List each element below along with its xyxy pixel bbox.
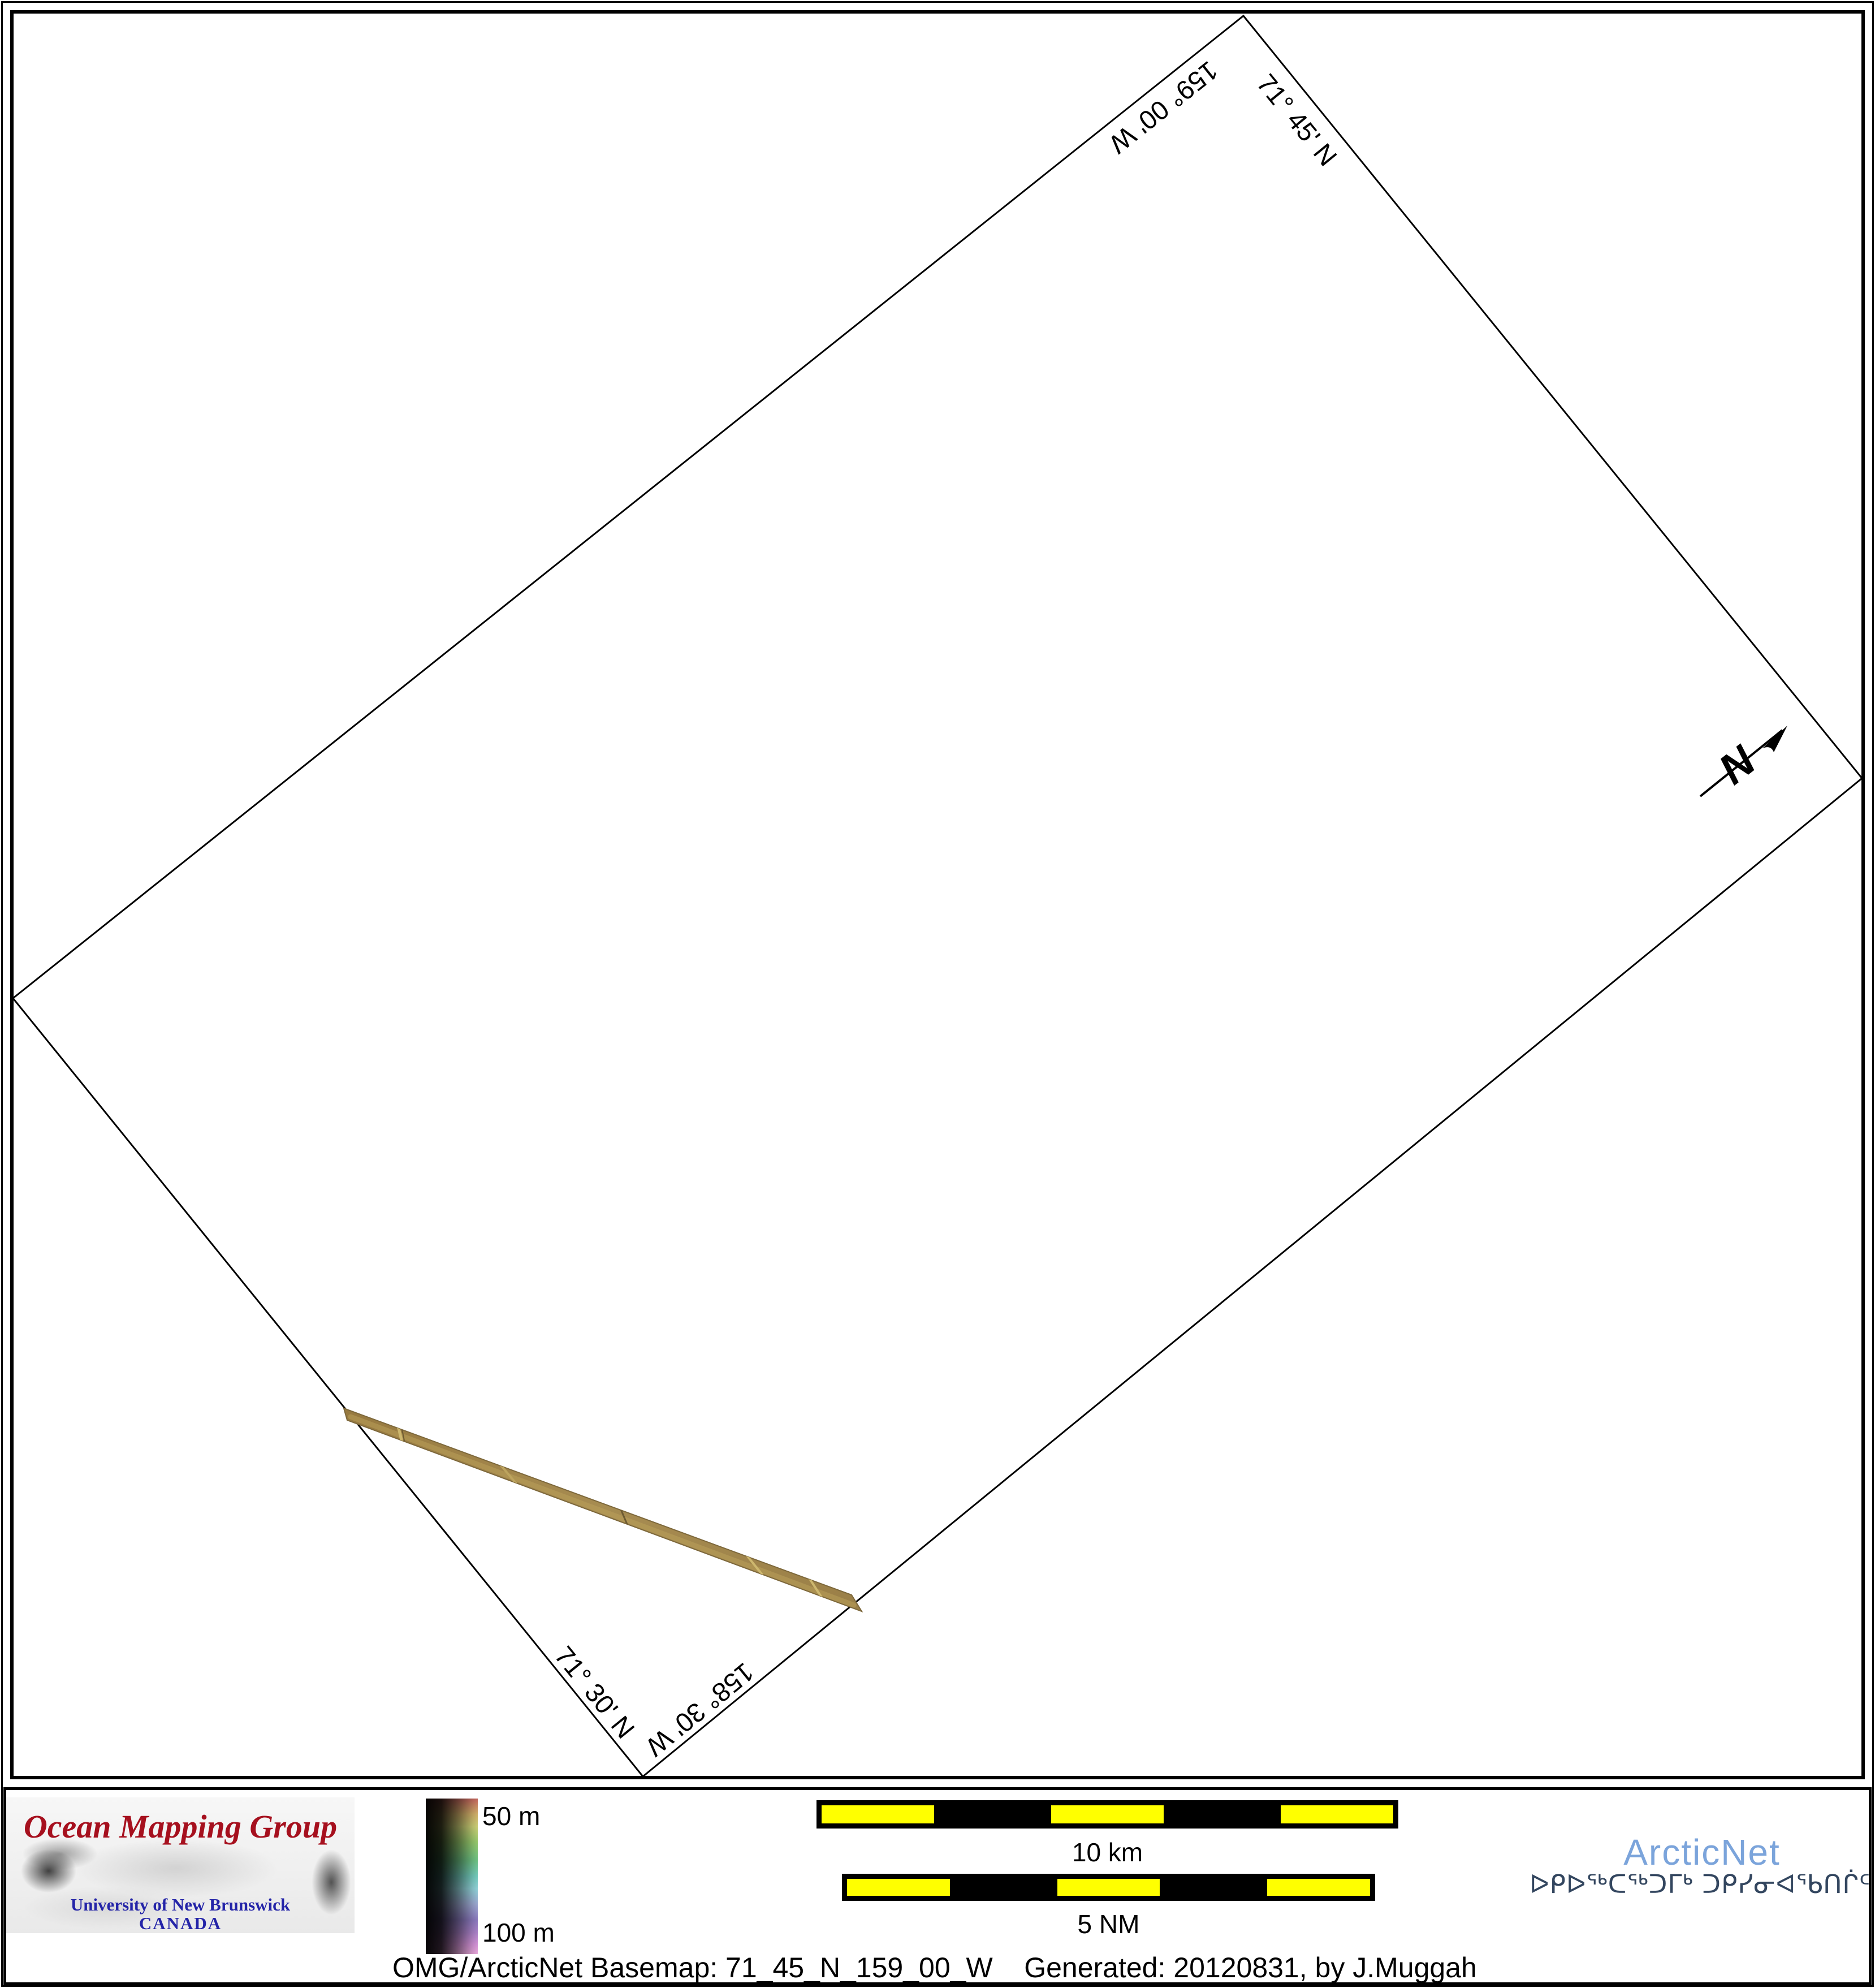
scalebar-5nm bbox=[842, 1874, 1375, 1901]
arcticnet-inuktitut-text: ᐅᑭᐅᖅᑕᖅᑐᒥᒃ ᑐᑭᓯᓂᐊᖃᑎᒌᑦ bbox=[1530, 1869, 1869, 1899]
colorbar-label-50m: 50 m bbox=[482, 1801, 540, 1831]
omg-logo-country: CANADA bbox=[6, 1913, 355, 1933]
omg-logo-university: University of New Brunswick bbox=[6, 1895, 355, 1915]
scalebar-segment bbox=[936, 1803, 1049, 1826]
depth-colorbar bbox=[426, 1799, 478, 1954]
omg-logo: Ocean Mapping Group University of New Br… bbox=[6, 1797, 355, 1933]
scalebar-5nm-label: 5 NM bbox=[842, 1909, 1375, 1939]
legend-box: Ocean Mapping Group University of New Br… bbox=[3, 1787, 1872, 1985]
scalebar-segment bbox=[1278, 1803, 1396, 1826]
omg-logo-title: Ocean Mapping Group bbox=[6, 1808, 355, 1845]
colorbar-label-100m: 100 m bbox=[482, 1917, 555, 1948]
scalebar-segment bbox=[1265, 1877, 1372, 1898]
scalebar-segment bbox=[1162, 1877, 1265, 1898]
scalebar-segment bbox=[1049, 1803, 1166, 1826]
scalebar-segment bbox=[819, 1803, 936, 1826]
scalebar-segment bbox=[1166, 1803, 1278, 1826]
map-canvas bbox=[0, 0, 1875, 1988]
graticule-outline bbox=[13, 16, 1862, 1776]
map-caption: OMG/ArcticNet Basemap: 71_45_N_159_00_W … bbox=[392, 1951, 1477, 1984]
basemap-page: { "map": { "labels": [ {"id": "longitude… bbox=[0, 0, 1875, 1988]
scalebar-segment bbox=[952, 1877, 1055, 1898]
scalebar-segment bbox=[845, 1877, 952, 1898]
scalebar-10km-label: 10 km bbox=[816, 1837, 1398, 1868]
scalebar-segment bbox=[1055, 1877, 1163, 1898]
arcticnet-logo: ArcticNet bbox=[1532, 1831, 1872, 1873]
scalebar-10km bbox=[816, 1800, 1398, 1829]
north-arrowhead bbox=[1762, 726, 1787, 752]
